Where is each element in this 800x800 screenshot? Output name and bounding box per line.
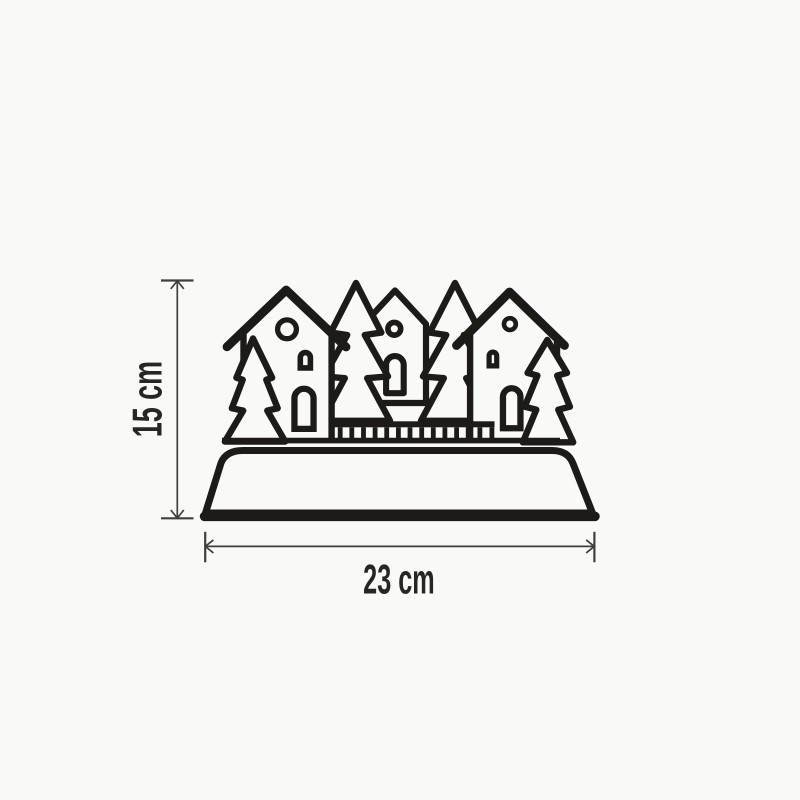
svg-text:23 cm: 23 cm [363, 557, 434, 603]
svg-text:15 cm: 15 cm [125, 361, 171, 437]
